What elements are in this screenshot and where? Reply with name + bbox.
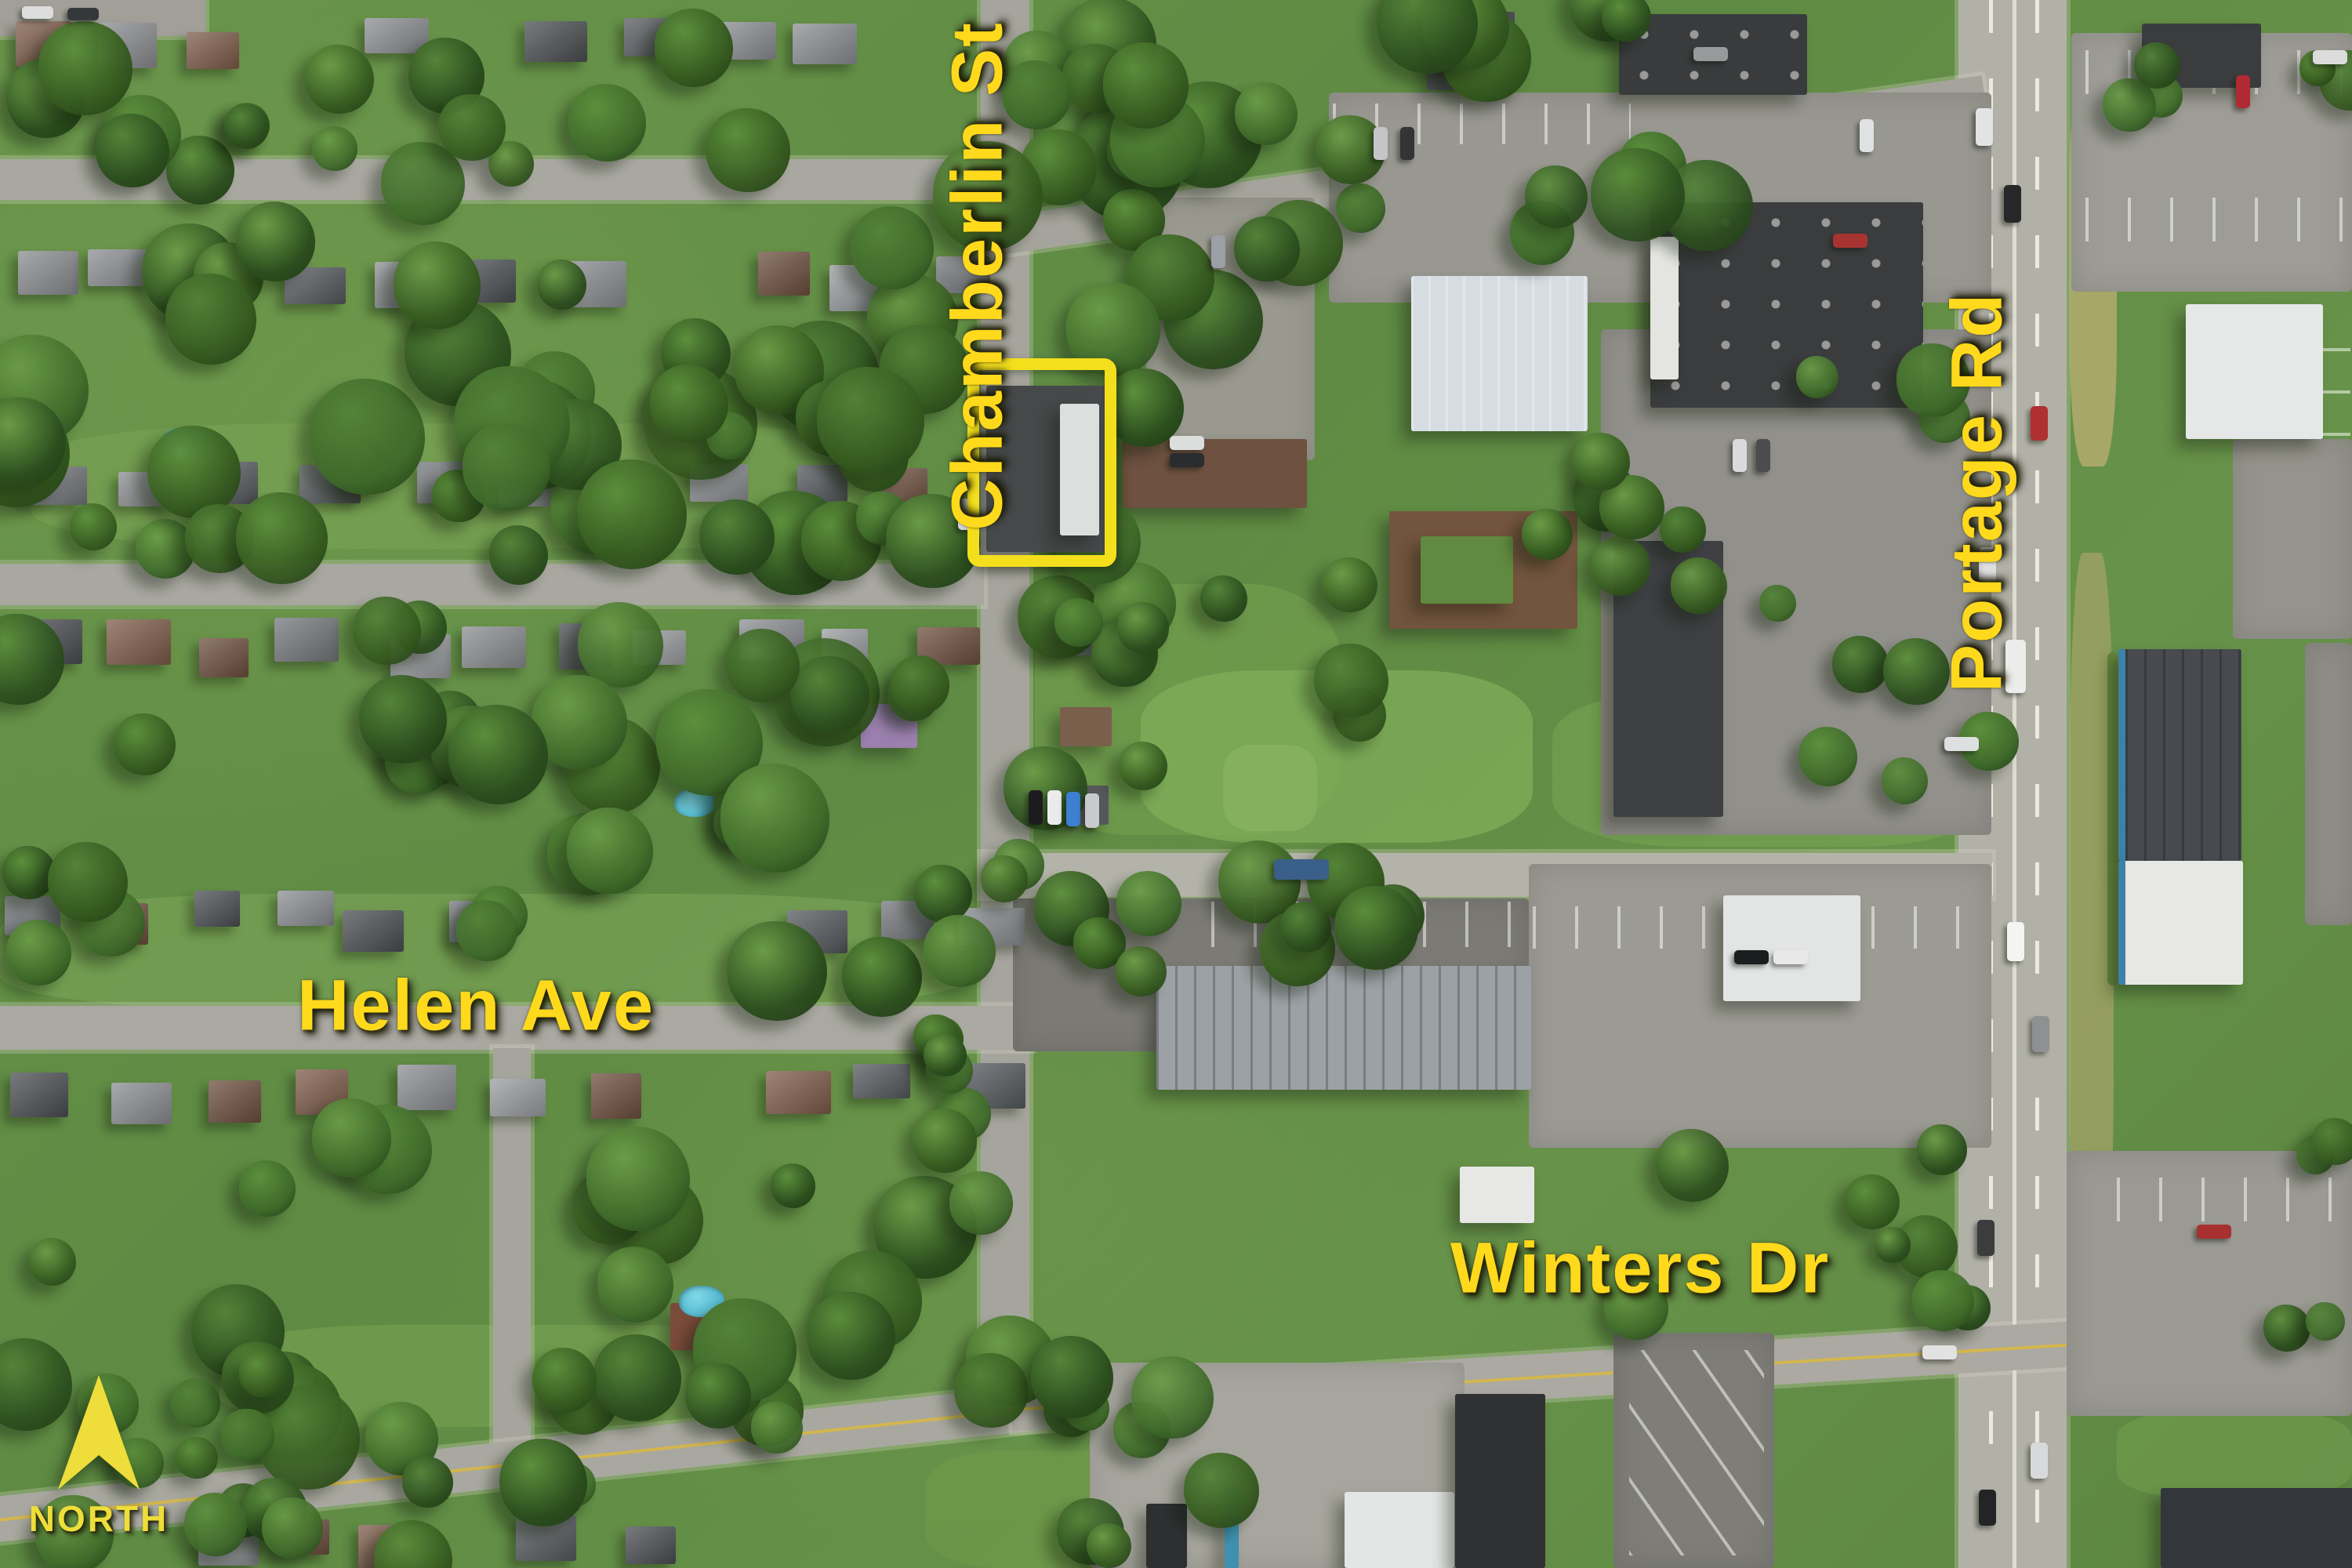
parking-lot <box>2305 643 2352 925</box>
parking-stall-lines <box>2117 1178 2346 1221</box>
car <box>1833 234 1867 248</box>
tree-canopy <box>567 808 653 894</box>
tree-canopy <box>1322 557 1377 613</box>
tree-canopy <box>353 597 422 666</box>
car <box>22 6 53 19</box>
car <box>2032 1016 2049 1052</box>
tree-canopy <box>1759 585 1796 622</box>
building <box>1421 536 1513 604</box>
car <box>2197 1225 2231 1239</box>
tree-canopy <box>312 126 357 171</box>
lawn-patch <box>1223 745 1317 831</box>
car <box>1693 47 1728 61</box>
tree-canopy <box>1525 165 1588 228</box>
house <box>626 1526 677 1564</box>
car <box>2236 75 2250 108</box>
tree-canopy <box>456 900 517 961</box>
tree-canopy <box>1912 1270 1974 1332</box>
tree-canopy <box>720 764 829 873</box>
aerial-map: Chamberlin St Portage Rd Helen Ave Winte… <box>0 0 2352 1568</box>
car <box>1860 119 1874 152</box>
tree-canopy <box>165 274 256 365</box>
tree-canopy <box>1832 636 1889 693</box>
tree-canopy <box>1131 1356 1214 1439</box>
car <box>1734 950 1769 964</box>
tree-canopy <box>114 713 176 775</box>
tree-canopy <box>463 423 550 510</box>
building <box>1650 237 1679 379</box>
house <box>462 626 526 669</box>
car <box>1085 793 1099 828</box>
car <box>1976 108 1993 146</box>
tree-canopy <box>96 114 169 187</box>
hedge-row <box>2107 652 2118 985</box>
tree-canopy <box>597 1247 673 1323</box>
street-label-helen: Helen Ave <box>297 965 655 1047</box>
tree-canopy <box>1796 356 1838 398</box>
car <box>1274 859 1329 880</box>
tree-canopy <box>1522 509 1573 561</box>
tree-canopy <box>537 260 586 309</box>
car <box>1374 127 1388 160</box>
car <box>2007 922 2024 961</box>
tree-canopy <box>1116 946 1167 997</box>
car <box>1733 439 1747 472</box>
tree-canopy <box>1031 1336 1113 1418</box>
tree-canopy <box>817 367 924 474</box>
tree-canopy <box>593 1334 681 1421</box>
house <box>397 1065 456 1110</box>
building <box>1156 966 1531 1090</box>
tree-canopy <box>1234 216 1300 282</box>
tree-canopy <box>568 84 646 162</box>
tree-canopy <box>532 1348 597 1412</box>
car <box>1066 792 1080 826</box>
car <box>2031 406 2048 441</box>
tree-canopy <box>6 920 72 985</box>
tree-canopy <box>924 1034 966 1076</box>
tree-canopy <box>1280 902 1331 953</box>
tree-canopy <box>1660 506 1706 553</box>
tree-canopy <box>262 1497 323 1559</box>
house <box>278 891 334 927</box>
house <box>758 252 811 296</box>
tree-canopy <box>38 21 132 115</box>
building <box>1345 1492 1454 1568</box>
car <box>1944 737 1979 751</box>
house <box>107 619 171 665</box>
map-features-layer <box>0 0 2352 1568</box>
house <box>793 24 857 64</box>
building <box>1723 895 1860 1001</box>
house <box>274 618 339 662</box>
tree-canopy <box>807 1292 895 1381</box>
tree-canopy <box>1119 742 1168 791</box>
tree-canopy <box>771 1163 815 1208</box>
parking-stall-lines <box>2085 198 2344 241</box>
building <box>1146 1504 1187 1568</box>
tree-canopy <box>851 206 934 289</box>
tree-canopy <box>1845 1174 1900 1229</box>
building <box>2161 1488 2352 1568</box>
house <box>187 32 239 69</box>
tree-canopy <box>1336 183 1385 233</box>
building <box>2186 304 2323 439</box>
tree-canopy <box>1572 433 1630 491</box>
tree-canopy <box>1103 42 1189 128</box>
tree-canopy <box>1656 1129 1729 1202</box>
tree-canopy <box>1116 871 1181 936</box>
tree-canopy <box>586 1127 691 1231</box>
car <box>1922 1345 1957 1359</box>
lawn-patch <box>2117 1411 2352 1497</box>
tree-canopy <box>236 492 327 583</box>
car <box>1170 436 1204 450</box>
tree-canopy <box>312 1098 391 1178</box>
tree-canopy <box>2312 1118 2352 1165</box>
car <box>1773 950 1808 964</box>
tree-canopy <box>1184 1453 1259 1528</box>
tree-canopy <box>1798 727 1857 786</box>
car <box>1756 439 1770 472</box>
car <box>67 8 99 20</box>
tree-canopy <box>1875 1227 1911 1263</box>
tree-canopy <box>1591 148 1684 241</box>
tree-canopy <box>309 379 425 495</box>
tree-canopy <box>1235 82 1298 145</box>
tree-canopy <box>791 656 869 735</box>
tree-canopy <box>1671 557 1727 614</box>
building <box>2118 649 2241 861</box>
north-label: NORTH <box>29 1497 169 1540</box>
tree-canopy <box>1087 1523 1131 1568</box>
tree-canopy <box>655 9 733 87</box>
tree-canopy <box>727 921 826 1021</box>
parking-stall-lines <box>1629 1350 1764 1555</box>
tree-canopy <box>448 705 549 805</box>
tree-canopy <box>29 1238 77 1286</box>
building <box>1060 707 1112 746</box>
tree-canopy <box>949 1171 1013 1235</box>
parking-stall-lines <box>2319 310 2350 436</box>
tree-canopy <box>239 1160 296 1217</box>
tree-canopy <box>1200 575 1247 622</box>
house <box>199 638 249 677</box>
tree-canopy <box>1334 886 1419 971</box>
tree-canopy <box>650 365 728 443</box>
car <box>2031 1443 2048 1479</box>
tree-canopy <box>48 842 128 922</box>
tree-canopy <box>70 503 117 550</box>
tree-canopy <box>305 45 375 114</box>
tree-canopy <box>706 108 790 193</box>
building <box>1411 276 1588 431</box>
tree-canopy <box>438 94 506 162</box>
car <box>1977 1220 1994 1256</box>
tree-canopy <box>914 865 973 924</box>
car <box>1029 790 1043 825</box>
tree-canopy <box>1314 644 1388 718</box>
tree-canopy <box>2263 1305 2311 1352</box>
car <box>2313 50 2347 64</box>
house <box>524 21 587 62</box>
tree-canopy <box>891 655 949 714</box>
tree-canopy <box>1882 757 1928 804</box>
tree-canopy <box>499 1439 587 1526</box>
tree-canopy <box>1917 1124 1968 1175</box>
house <box>343 910 404 952</box>
tree-canopy <box>239 1350 287 1398</box>
tree-canopy <box>359 675 448 764</box>
car <box>1979 1490 1996 1526</box>
car <box>2004 185 2021 223</box>
tree-canopy <box>981 855 1028 902</box>
tree-canopy <box>751 1402 803 1454</box>
house <box>194 891 240 927</box>
tree-canopy <box>699 499 775 575</box>
tree-canopy <box>578 459 687 568</box>
building <box>1460 1167 1534 1223</box>
tree-canopy <box>842 937 922 1017</box>
car <box>1047 790 1062 825</box>
car <box>1211 235 1225 268</box>
tree-canopy <box>489 525 549 585</box>
building <box>1455 1394 1545 1568</box>
tree-canopy <box>2306 1302 2345 1341</box>
north-arrow-icon <box>58 1375 140 1493</box>
car <box>1170 453 1204 467</box>
tree-canopy <box>913 1109 978 1174</box>
tree-canopy <box>1591 536 1650 596</box>
tree-canopy <box>402 1457 452 1507</box>
house <box>591 1073 641 1119</box>
tree-canopy <box>236 201 315 281</box>
tree-canopy <box>685 1363 751 1428</box>
tree-canopy <box>394 241 481 328</box>
tree-canopy <box>2134 42 2180 89</box>
tree-canopy <box>954 1353 1029 1428</box>
house <box>490 1079 546 1116</box>
tree-canopy <box>578 602 663 688</box>
car <box>1400 127 1414 160</box>
house <box>853 1064 910 1099</box>
street-label-chamberlin: Chamberlin St <box>937 21 1019 531</box>
building <box>2118 861 2243 985</box>
house <box>18 251 78 294</box>
tree-canopy <box>1105 368 1184 447</box>
parking-lot <box>2233 439 2352 639</box>
tree-canopy <box>726 629 800 702</box>
tree-canopy <box>1117 602 1169 654</box>
tree-canopy <box>1054 598 1103 647</box>
street-label-portage: Portage Rd <box>1936 292 2019 693</box>
house <box>209 1080 261 1123</box>
house <box>10 1073 68 1117</box>
house <box>111 1083 172 1124</box>
building <box>1123 439 1307 508</box>
tree-canopy <box>224 103 270 149</box>
tree-canopy <box>924 915 996 987</box>
house <box>766 1071 831 1114</box>
street-label-winters: Winters Dr <box>1450 1228 1830 1310</box>
